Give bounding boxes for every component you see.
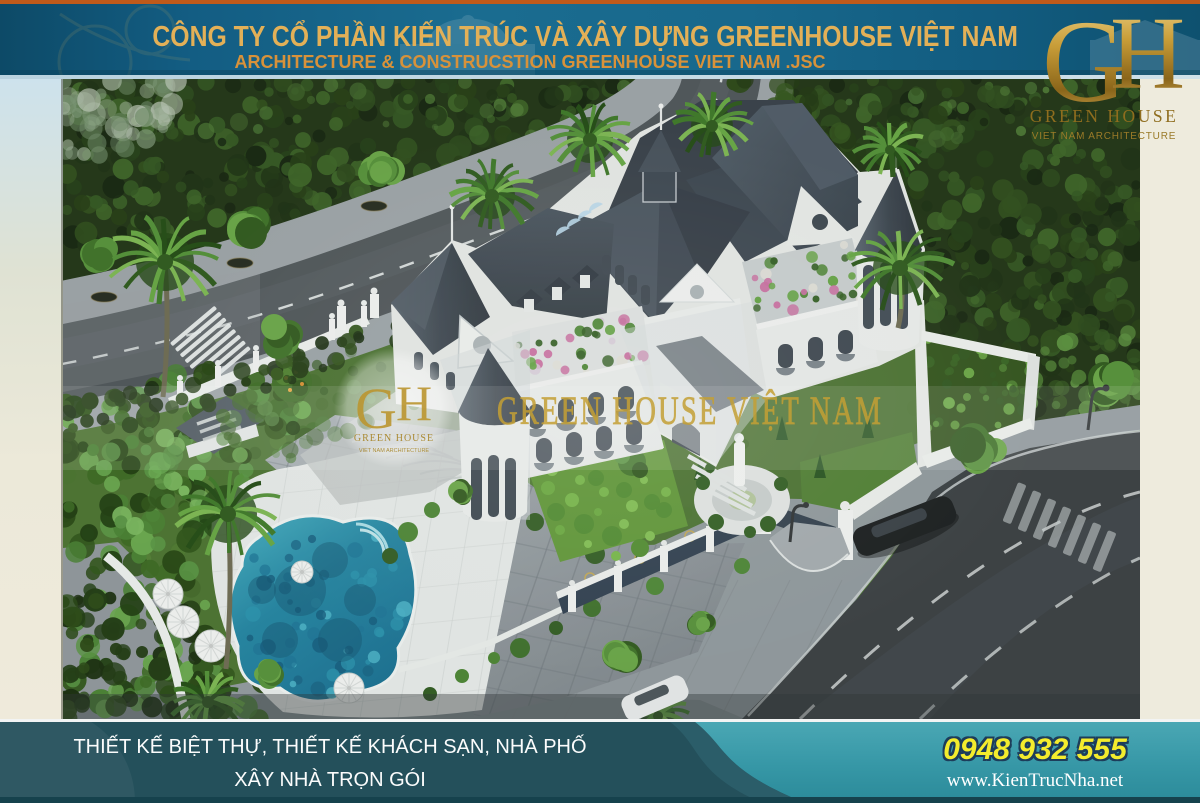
svg-text:VIET NAM ARCHITECTURE: VIET NAM ARCHITECTURE — [1032, 131, 1176, 142]
svg-text:GREEN HOUSE: GREEN HOUSE — [354, 433, 434, 444]
svg-text:GREEN HOUSE: GREEN HOUSE — [1030, 106, 1179, 126]
svg-text:GREEN HOUSE VIỆT NAM: GREEN HOUSE VIỆT NAM — [497, 388, 883, 433]
svg-text:VIET NAM ARCHITECTURE: VIET NAM ARCHITECTURE — [359, 448, 430, 454]
svg-text:H: H — [396, 375, 432, 431]
svg-text:G: G — [355, 376, 397, 441]
svg-text:H: H — [1110, 0, 1185, 111]
